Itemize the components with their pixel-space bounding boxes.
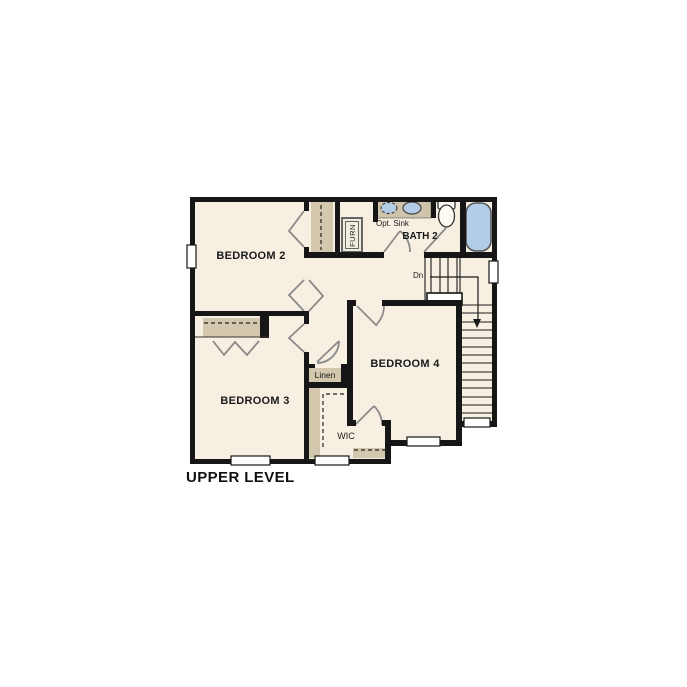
window	[489, 261, 498, 283]
window	[231, 456, 270, 465]
furnace-label: FURN	[348, 224, 357, 247]
window	[464, 418, 490, 427]
room-label-bedroom-4: BEDROOM 4	[353, 358, 457, 370]
floor-plan-page: BEDROOM 2 BEDROOM 3 BEDROOM 4 BATH 2 Opt…	[0, 0, 687, 687]
bathtub-icon	[466, 203, 491, 251]
linen-label: Linen	[309, 370, 341, 380]
floor-plan: BEDROOM 2 BEDROOM 3 BEDROOM 4 BATH 2 Opt…	[185, 195, 500, 473]
window	[407, 437, 440, 446]
wic-shelf-left	[308, 388, 320, 458]
window	[315, 456, 349, 465]
furnace-label-box: FURN	[342, 218, 362, 252]
room-label-bedroom-3: BEDROOM 3	[203, 395, 307, 407]
bedroom2-closet	[311, 202, 333, 252]
stairs-down-label: Dn	[413, 271, 423, 280]
sink-icon	[403, 202, 421, 214]
room-label-bedroom-2: BEDROOM 2	[199, 250, 303, 262]
room-label-bath-2: BATH 2	[390, 231, 450, 242]
toilet-icon	[438, 200, 455, 227]
page-title: UPPER LEVEL	[186, 469, 295, 486]
bedroom3-closet	[203, 318, 269, 337]
wic-label: WIC	[326, 431, 366, 441]
window	[187, 245, 196, 268]
optional-sink-icon	[381, 203, 397, 214]
optional-sink-label: Opt. Sink	[376, 219, 409, 228]
